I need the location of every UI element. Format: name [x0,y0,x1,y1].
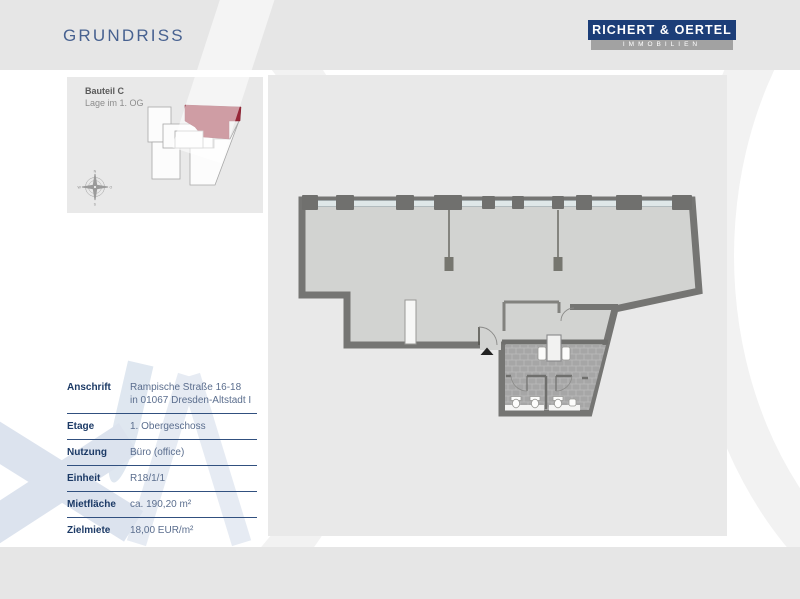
info-label: Nutzung [67,446,130,459]
corner-sink [569,399,576,406]
info-table: Anschrift Rampische Straße 16-18 in 0106… [67,375,257,543]
logo-company-name: RICHERT & OERTEL [588,20,736,40]
svg-text:N: N [94,170,97,174]
info-row-nutzung: Nutzung Büro (office) [67,439,257,465]
info-row-zielmiete: Zielmiete 18,00 EUR/m² [67,517,257,543]
info-value: Rampische Straße 16-18 in 01067 Dresden-… [130,381,257,407]
info-label: Anschrift [67,381,130,407]
info-value: 1. Obergeschoss [130,420,257,433]
info-row-einheit: Einheit R18/1/1 [67,465,257,491]
floor-plan-figure [268,75,727,536]
page: GRUNDRISS RICHERT & OERTEL IMMOBILIEN Ba… [0,0,800,599]
company-logo: RICHERT & OERTEL IMMOBILIEN [588,20,736,50]
sink [538,347,546,360]
logo-tagline: IMMOBILIEN [591,40,733,50]
info-row-anschrift: Anschrift Rampische Straße 16-18 in 0106… [67,375,257,413]
info-value: ca. 190,20 m² [130,498,257,511]
info-value: R18/1/1 [130,472,257,485]
info-value: Büro (office) [130,446,257,459]
outer-walls [302,200,699,413]
svg-text:O: O [110,186,113,190]
svg-text:S: S [94,203,97,207]
info-label: Mietfläche [67,498,130,511]
info-value: 18,00 EUR/m² [130,524,257,537]
info-row-etage: Etage 1. Obergeschoss [67,413,257,439]
info-label: Zielmiete [67,524,130,537]
info-label: Einheit [67,472,130,485]
wall-slot [405,300,416,344]
sink [562,347,570,360]
svg-text:W: W [78,186,82,190]
info-label: Etage [67,420,130,433]
compass-rose-icon: N O S W [78,170,113,207]
footer-band [0,547,800,599]
info-row-mietflaeche: Mietfläche ca. 190,20 m² [67,491,257,517]
shaft [547,335,561,361]
page-title: GRUNDRISS [63,26,185,46]
floor-plan-panel [268,75,727,536]
